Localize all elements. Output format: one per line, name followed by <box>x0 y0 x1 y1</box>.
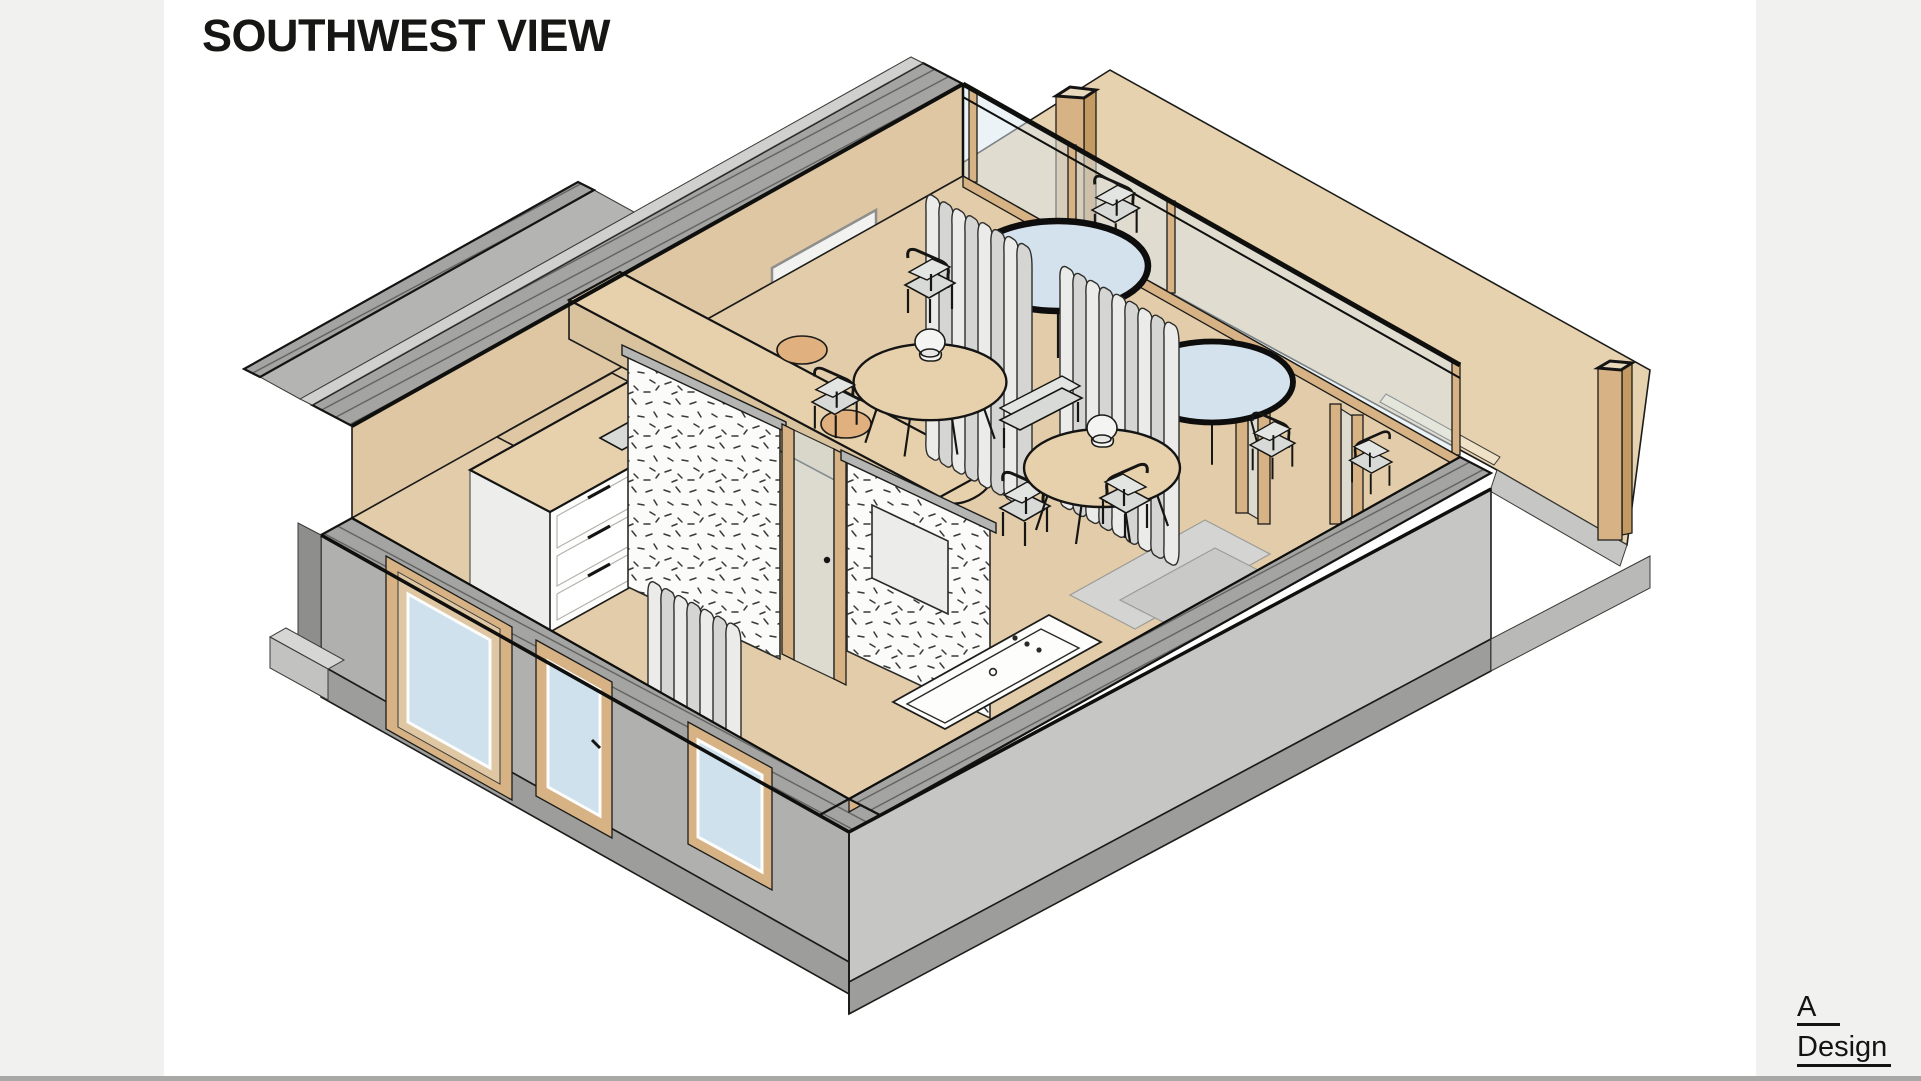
stool <box>777 336 827 364</box>
bottom-edge-bar <box>0 1076 1921 1081</box>
table-lamp <box>915 329 945 361</box>
brand-line-1[interactable]: A <box>1797 991 1840 1026</box>
stool <box>821 410 871 438</box>
bathroom-door <box>782 424 846 685</box>
brand-link[interactable]: A Design <box>1797 991 1891 1072</box>
timber-post-east <box>1598 361 1632 540</box>
se-plinth-extension <box>1491 556 1650 671</box>
brand-line-2[interactable]: Design <box>1797 1031 1891 1066</box>
door-handle <box>824 557 830 563</box>
axonometric-drawing <box>0 0 1921 1081</box>
table-lamp <box>1087 415 1117 447</box>
